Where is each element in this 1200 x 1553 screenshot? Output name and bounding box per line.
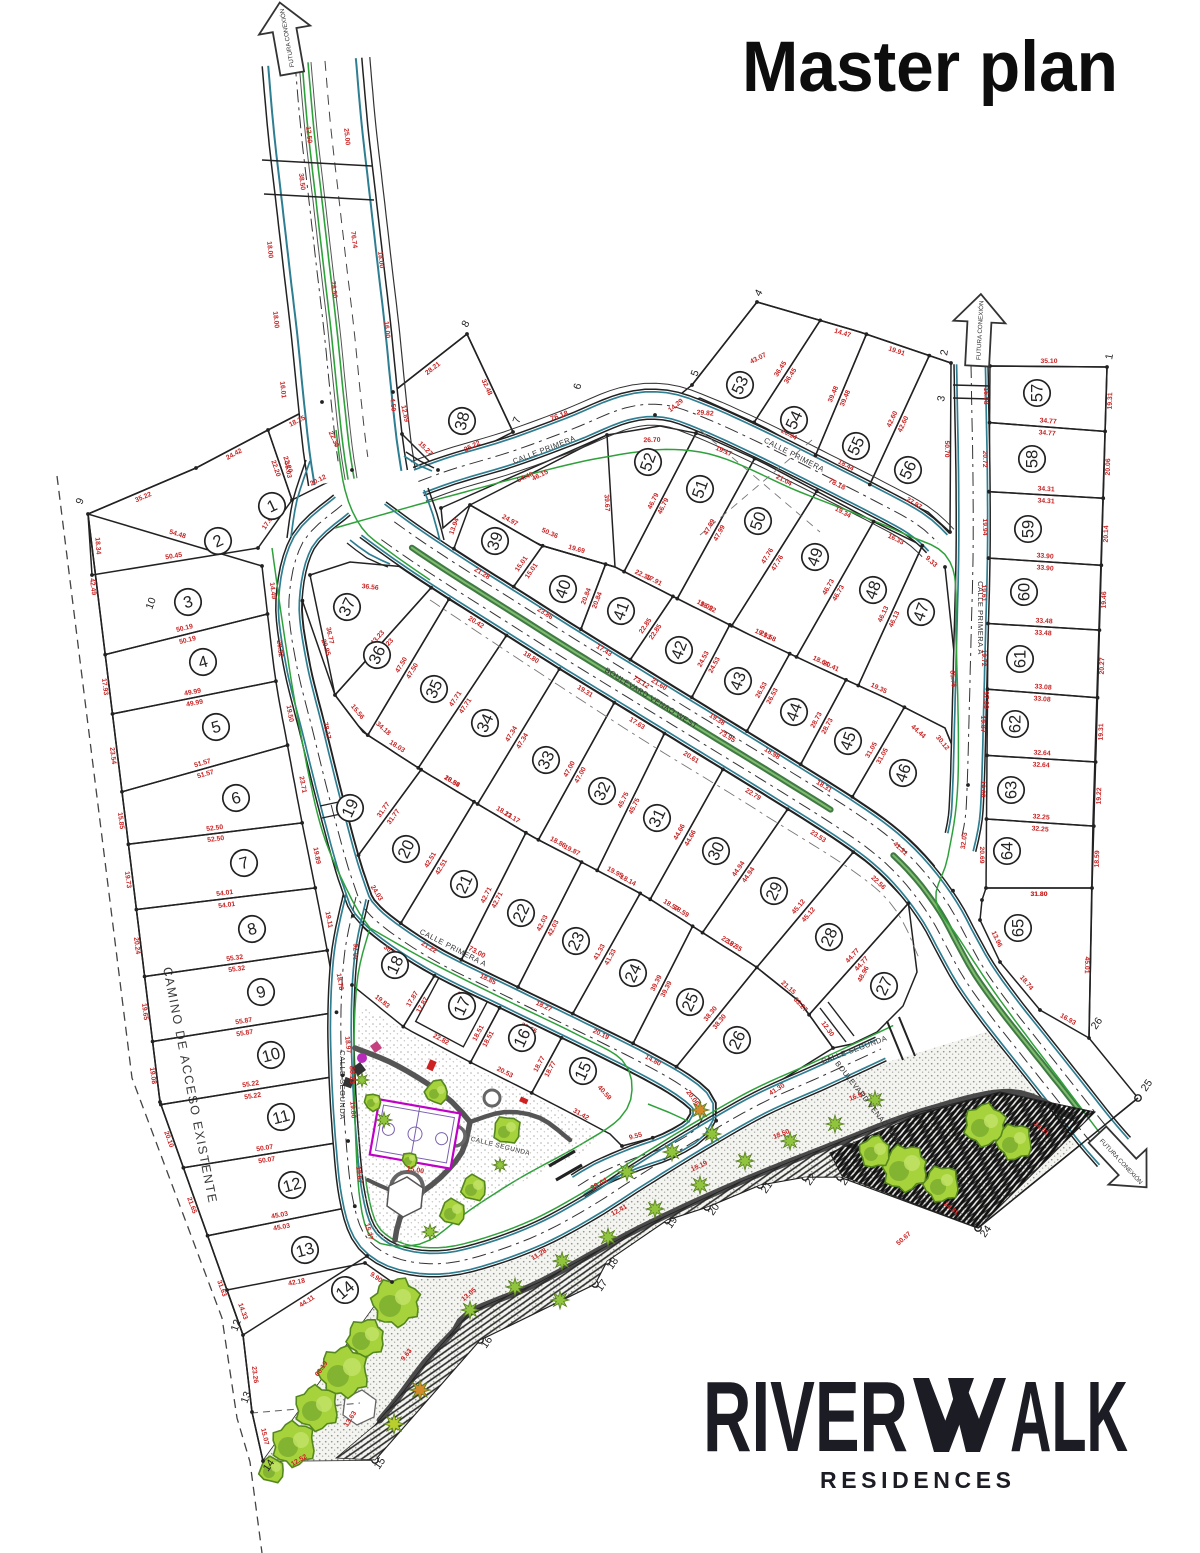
svg-text:16.98: 16.98	[982, 387, 989, 404]
svg-text:19.22: 19.22	[1096, 787, 1104, 804]
svg-text:97.00: 97.00	[982, 691, 991, 709]
svg-text:63: 63	[1003, 781, 1021, 799]
svg-text:64: 64	[999, 842, 1017, 860]
svg-text:59: 59	[1020, 520, 1038, 538]
svg-text:62: 62	[1007, 715, 1025, 733]
svg-text:58: 58	[1024, 450, 1042, 468]
svg-text:33.90: 33.90	[1036, 552, 1054, 560]
svg-text:19.94: 19.94	[981, 518, 988, 535]
svg-text:20.06: 20.06	[1105, 458, 1113, 475]
svg-text:20.14: 20.14	[1103, 525, 1111, 542]
svg-text:34.77: 34.77	[1039, 417, 1057, 425]
svg-text:19.08: 19.08	[979, 780, 986, 797]
svg-text:4.50: 4.50	[388, 398, 396, 412]
svg-text:RESIDENCES: RESIDENCES	[820, 1467, 1017, 1493]
svg-text:33.90: 33.90	[1036, 564, 1054, 572]
svg-text:RIVER: RIVER	[703, 1361, 908, 1473]
svg-text:88.23: 88.23	[348, 1066, 358, 1084]
svg-text:35.10: 35.10	[1040, 358, 1057, 365]
svg-text:34.31: 34.31	[1037, 498, 1055, 506]
svg-text:20.69: 20.69	[978, 846, 985, 863]
svg-text:34.31: 34.31	[1037, 486, 1055, 494]
svg-text:18.34: 18.34	[93, 537, 101, 555]
svg-text:32.25: 32.25	[1031, 825, 1049, 833]
svg-text:18.59: 18.59	[1094, 850, 1102, 867]
svg-text:60: 60	[1016, 583, 1034, 601]
svg-text:20.27: 20.27	[1099, 657, 1107, 674]
svg-text:CALLE SEGUNDA: CALLE SEGUNDA	[338, 1050, 347, 1119]
svg-text:45.01: 45.01	[1083, 956, 1090, 973]
svg-text:61: 61	[1012, 650, 1030, 668]
svg-text:32.64: 32.64	[1033, 750, 1051, 758]
svg-text:32.25: 32.25	[1032, 813, 1050, 821]
svg-text:33.48: 33.48	[1034, 630, 1052, 638]
svg-text:57: 57	[1029, 384, 1047, 402]
svg-text:20.76: 20.76	[353, 943, 360, 960]
svg-text:CALLE PRIMERA A: CALLE PRIMERA A	[976, 581, 985, 655]
svg-text:19.46: 19.46	[1101, 591, 1109, 608]
svg-text:20.72: 20.72	[981, 450, 988, 467]
svg-text:19.80: 19.80	[348, 1101, 356, 1119]
svg-text:Master plan: Master plan	[742, 28, 1118, 107]
svg-text:39.67: 39.67	[603, 494, 611, 512]
svg-text:50.70: 50.70	[943, 440, 950, 457]
svg-text:19.31: 19.31	[1098, 723, 1106, 740]
svg-text:ALK: ALK	[1010, 1361, 1128, 1473]
svg-text:29.82: 29.82	[696, 409, 714, 417]
svg-text:33.08: 33.08	[1033, 695, 1051, 703]
svg-text:33.48: 33.48	[1035, 618, 1053, 626]
svg-text:19.31: 19.31	[1107, 392, 1115, 409]
svg-text:32.64: 32.64	[1032, 762, 1050, 770]
svg-text:19.87: 19.87	[979, 715, 986, 732]
svg-text:34.77: 34.77	[1038, 429, 1056, 437]
svg-text:31.80: 31.80	[1030, 891, 1047, 898]
svg-text:26.70: 26.70	[643, 437, 660, 444]
svg-text:65: 65	[1010, 919, 1028, 937]
svg-text:33.08: 33.08	[1034, 683, 1052, 691]
